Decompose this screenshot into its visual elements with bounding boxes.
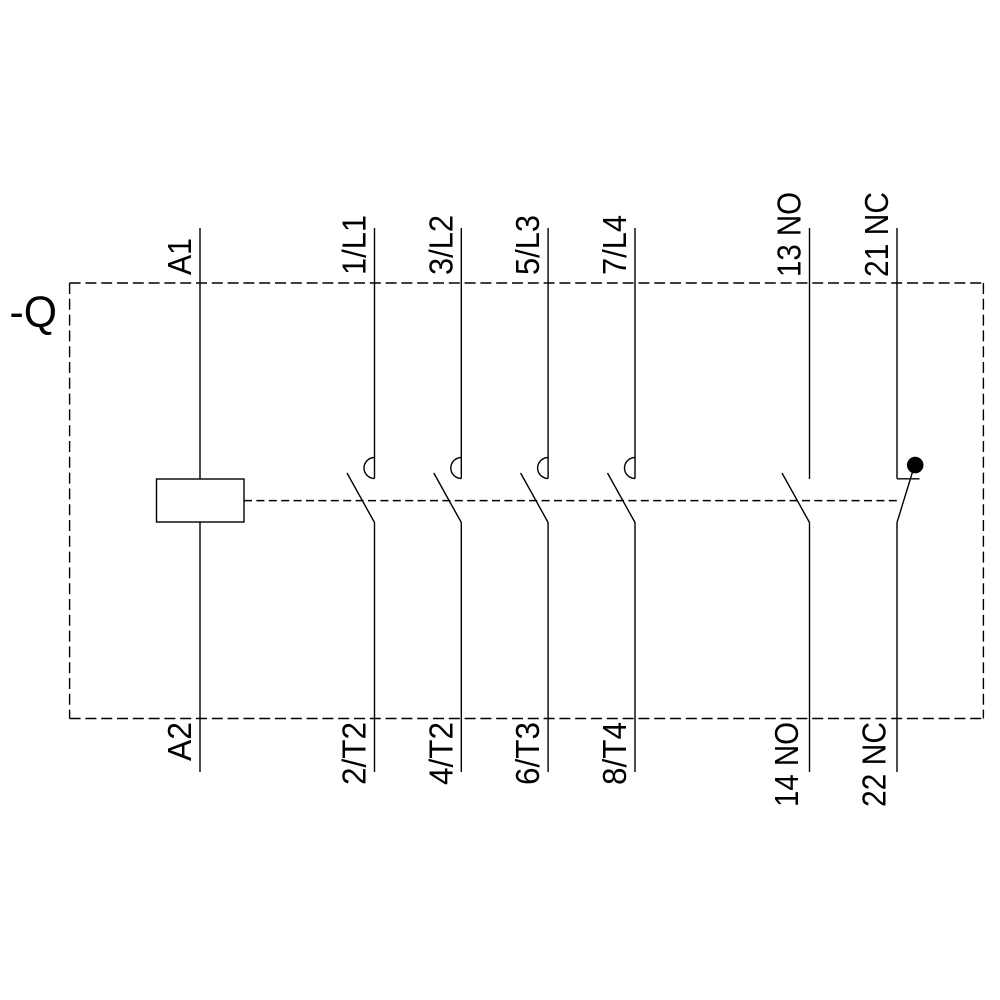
svg-text:14 NO: 14 NO [768, 722, 805, 807]
svg-text:3/L2: 3/L2 [422, 215, 459, 275]
svg-text:22 NC: 22 NC [856, 722, 893, 807]
svg-text:6/T3: 6/T3 [509, 722, 546, 785]
svg-text:A2: A2 [161, 722, 198, 761]
svg-text:5/L3: 5/L3 [509, 215, 546, 275]
svg-text:21 NC: 21 NC [858, 192, 895, 277]
svg-text:8/T4: 8/T4 [596, 722, 633, 785]
svg-text:13 NO: 13 NO [771, 192, 808, 277]
svg-text:4/T2: 4/T2 [422, 722, 459, 785]
svg-text:2/T2: 2/T2 [336, 722, 373, 785]
svg-text:-Q: -Q [10, 289, 58, 337]
svg-text:1/L1: 1/L1 [336, 215, 373, 275]
svg-text:7/L4: 7/L4 [596, 215, 633, 275]
svg-text:A1: A1 [161, 238, 198, 275]
